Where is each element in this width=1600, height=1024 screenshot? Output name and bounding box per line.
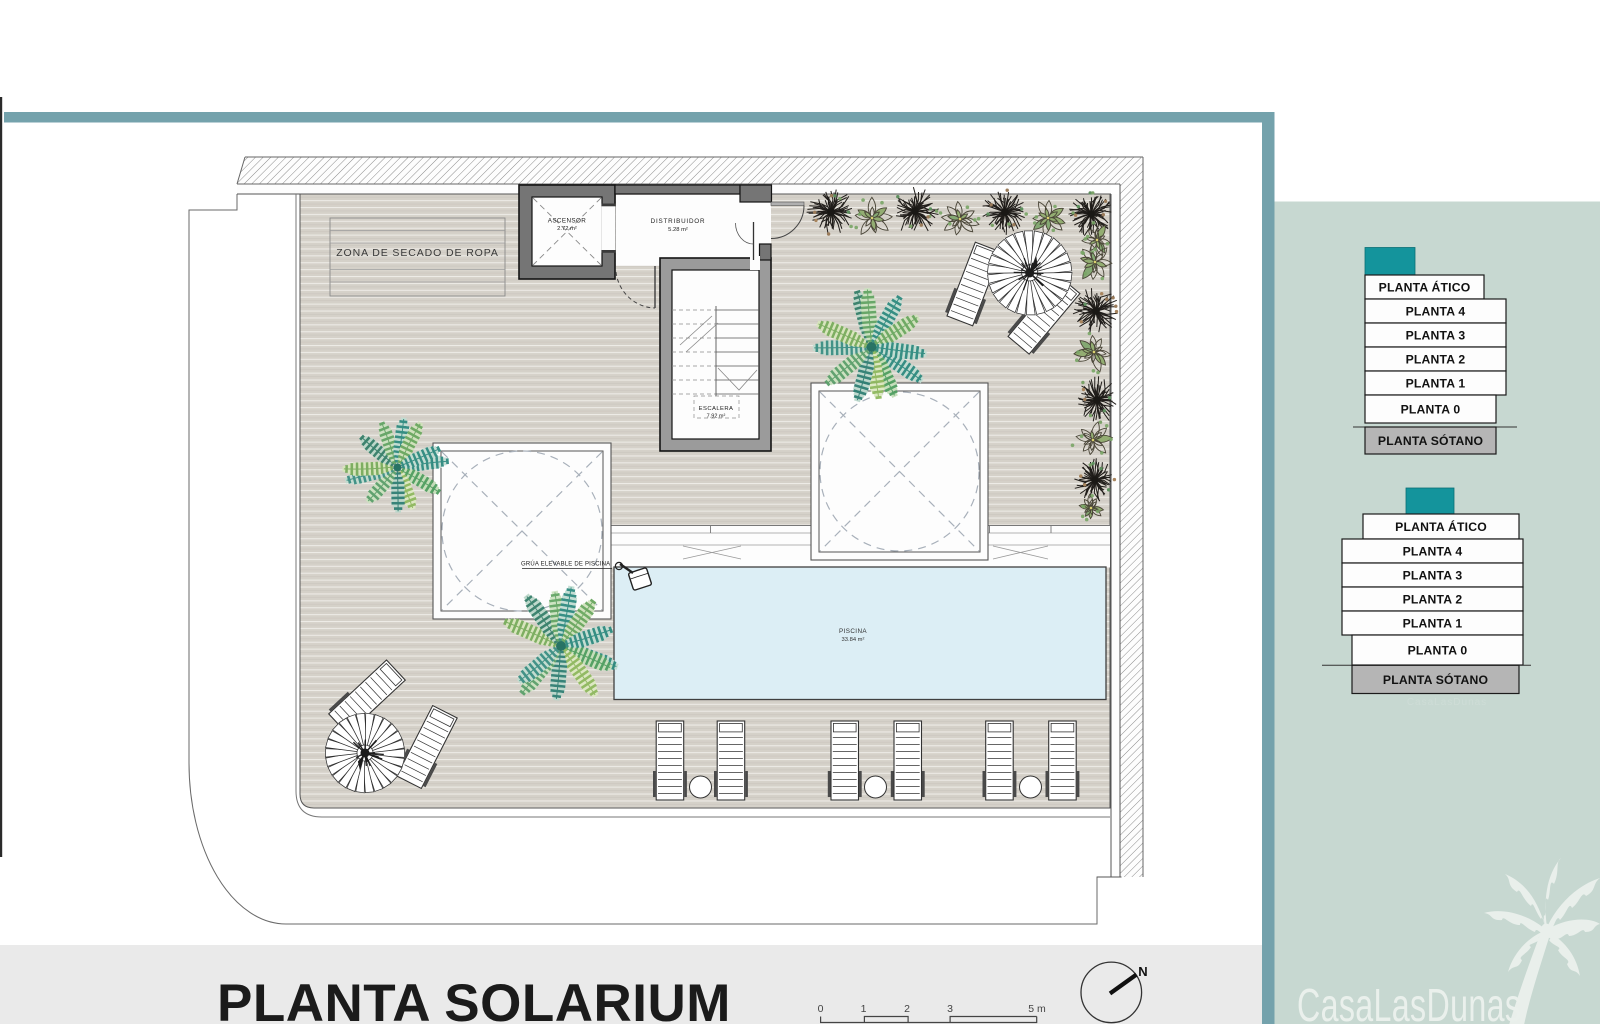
svg-text:0: 0 [818,1003,824,1015]
svg-text:33.84 m²: 33.84 m² [842,637,865,643]
svg-text:PLANTA 1: PLANTA 1 [1406,377,1466,391]
svg-text:PLANTA ÁTICO: PLANTA ÁTICO [1379,280,1471,295]
svg-text:GRÚA ELEVABLE DE PISCINA: GRÚA ELEVABLE DE PISCINA [521,561,610,568]
svg-text:PLANTA 2: PLANTA 2 [1406,353,1466,367]
svg-text:CasaLasDunas: CasaLasDunas [1297,980,1521,1024]
svg-text:7.92 m²: 7.92 m² [707,414,726,420]
svg-text:PLANTA 1: PLANTA 1 [1403,617,1463,631]
svg-text:ZONA DE SECADO DE ROPA: ZONA DE SECADO DE ROPA [336,247,499,259]
svg-text:PLANTA 0: PLANTA 0 [1408,644,1468,658]
svg-text:PLANTA 2: PLANTA 2 [1403,593,1463,607]
svg-text:ESCALERA: ESCALERA [699,406,734,412]
svg-text:CasaLasDunas: CasaLasDunas [1407,697,1487,708]
svg-text:3: 3 [947,1003,953,1015]
svg-text:PLANTA 3: PLANTA 3 [1403,569,1463,583]
svg-text:PLANTA 4: PLANTA 4 [1403,545,1463,559]
svg-text:5 m: 5 m [1028,1003,1046,1015]
svg-text:2: 2 [904,1003,910,1015]
svg-text:PLANTA SÓTANO: PLANTA SÓTANO [1383,672,1488,687]
svg-text:PLANTA ÁTICO: PLANTA ÁTICO [1395,519,1487,534]
svg-text:PLANTA SOLARIUM: PLANTA SOLARIUM [217,974,731,1024]
svg-text:1: 1 [861,1003,867,1015]
svg-text:PLANTA 3: PLANTA 3 [1406,329,1466,343]
svg-text:5.28 m²: 5.28 m² [668,227,688,233]
svg-text:2.72 m²: 2.72 m² [557,226,577,232]
svg-text:PLANTA SÓTANO: PLANTA SÓTANO [1378,433,1483,448]
svg-text:ASCENSOR: ASCENSOR [548,218,587,225]
svg-text:PISCINA: PISCINA [839,628,867,635]
svg-text:DISTRIBUIDOR: DISTRIBUIDOR [651,218,706,225]
svg-text:PLANTA 4: PLANTA 4 [1406,305,1466,319]
svg-text:N: N [1138,964,1147,979]
svg-text:PLANTA 0: PLANTA 0 [1401,403,1461,417]
